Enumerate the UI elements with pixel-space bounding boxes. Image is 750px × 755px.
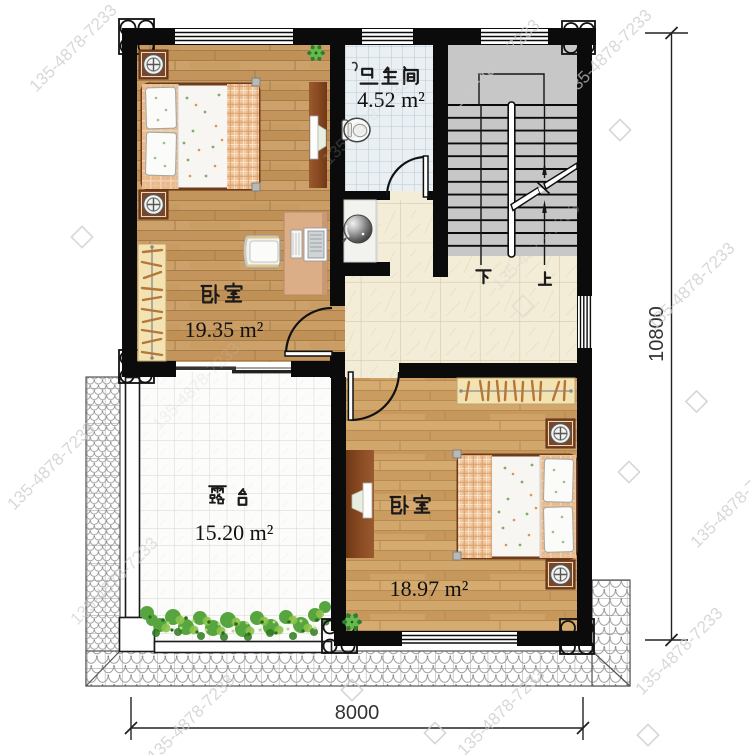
svg-text:15.20 m²: 15.20 m² xyxy=(195,520,274,545)
svg-text:19.35 m²: 19.35 m² xyxy=(185,317,264,342)
svg-text:18.97 m²: 18.97 m² xyxy=(390,576,469,601)
svg-text:8000: 8000 xyxy=(335,702,380,724)
